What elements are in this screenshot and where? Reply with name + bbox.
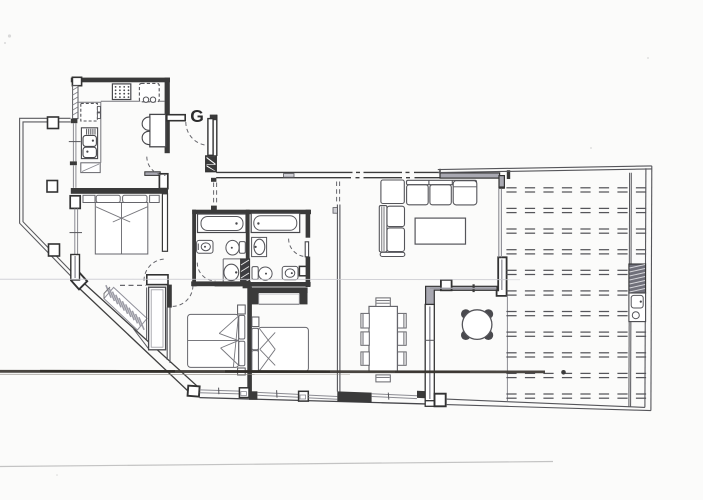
svg-text:G: G — [190, 106, 204, 126]
